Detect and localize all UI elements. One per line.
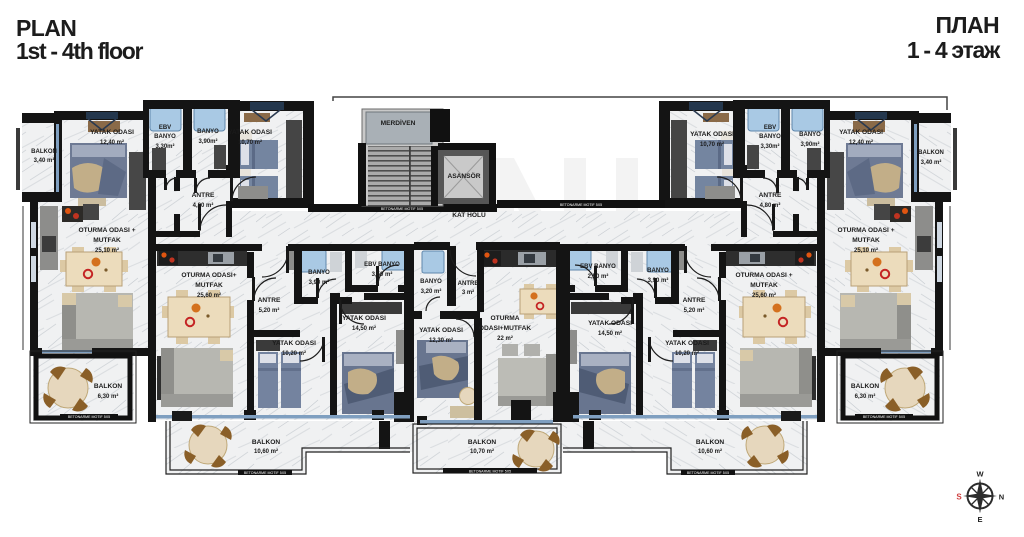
svg-text:25,10 m²: 25,10 m² xyxy=(95,247,119,254)
svg-text:MERDİVEN: MERDİVEN xyxy=(381,119,416,127)
svg-text:25,60 m²: 25,60 m² xyxy=(752,292,776,299)
svg-text:YATAK ODASI: YATAK ODASI xyxy=(419,327,463,334)
svg-text:BETONARME MOTIF 5X5: BETONARME MOTIF 5X5 xyxy=(687,471,729,475)
svg-text:3,90 m²: 3,90 m² xyxy=(309,279,330,286)
svg-text:25,10 m²: 25,10 m² xyxy=(854,247,878,254)
svg-text:10,60 m²: 10,60 m² xyxy=(698,448,722,455)
svg-text:BANYO: BANYO xyxy=(308,270,330,276)
svg-text:OTURMA ODASI +: OTURMA ODASI + xyxy=(735,272,792,279)
svg-text:EBV BANYO: EBV BANYO xyxy=(580,264,616,270)
svg-text:E: E xyxy=(977,515,982,524)
svg-text:ПЛАН: ПЛАН xyxy=(936,12,1000,38)
svg-text:BETONARME MOTIF 5X5: BETONARME MOTIF 5X5 xyxy=(560,203,602,207)
svg-text:4,80 m²: 4,80 m² xyxy=(193,202,214,209)
svg-text:ANTRE: ANTRE xyxy=(192,192,215,199)
svg-text:6,30 m²: 6,30 m² xyxy=(98,393,119,400)
svg-text:BETONARME MOTIF 5X5: BETONARME MOTIF 5X5 xyxy=(381,207,423,211)
svg-text:MUTFAK: MUTFAK xyxy=(93,237,121,244)
svg-text:BANYO: BANYO xyxy=(197,129,219,135)
svg-text:BALKON: BALKON xyxy=(696,439,724,446)
svg-text:YATAK ODASI: YATAK ODASI xyxy=(90,129,134,136)
svg-text:OTURMA ODASI +: OTURMA ODASI + xyxy=(837,227,894,234)
svg-text:12,30 m²: 12,30 m² xyxy=(429,337,453,344)
svg-text:1st - 4th floor: 1st - 4th floor xyxy=(16,38,144,64)
svg-text:12,40 m²: 12,40 m² xyxy=(849,139,873,146)
svg-text:EBV: EBV xyxy=(159,125,171,131)
svg-text:22 m²: 22 m² xyxy=(497,335,513,342)
svg-text:ANTRE: ANTRE xyxy=(759,192,782,199)
svg-text:EBV: EBV xyxy=(764,125,776,131)
svg-text:N: N xyxy=(999,493,1004,502)
svg-text:ASANSÖR: ASANSÖR xyxy=(448,171,481,180)
svg-text:3,30m²: 3,30m² xyxy=(155,143,174,150)
svg-text:OTURMA ODASI +: OTURMA ODASI + xyxy=(78,227,135,234)
svg-text:25,60 m²: 25,60 m² xyxy=(197,292,221,299)
svg-text:YATAK ODASI: YATAK ODASI xyxy=(665,340,709,347)
svg-text:MUTFAK: MUTFAK xyxy=(852,237,880,244)
svg-text:10,70 m²: 10,70 m² xyxy=(238,139,262,146)
svg-text:BALKON: BALKON xyxy=(252,439,280,446)
svg-text:YATAK ODASI: YATAK ODASI xyxy=(839,129,883,136)
svg-text:OTURMA: OTURMA xyxy=(491,315,520,322)
svg-text:10,20 m²: 10,20 m² xyxy=(675,350,699,357)
svg-text:BANYO: BANYO xyxy=(154,134,176,140)
svg-text:YATAK ODASI: YATAK ODASI xyxy=(588,320,632,327)
svg-text:KAT HOLÜ: KAT HOLÜ xyxy=(452,210,486,219)
svg-text:14,50 m²: 14,50 m² xyxy=(598,330,622,337)
svg-text:BANYO: BANYO xyxy=(759,134,781,140)
svg-text:2,50 m²: 2,50 m² xyxy=(588,273,609,280)
svg-text:MUTFAK: MUTFAK xyxy=(750,282,778,289)
svg-text:EBV BANYO: EBV BANYO xyxy=(364,262,400,268)
svg-text:5,20 m²: 5,20 m² xyxy=(684,307,705,314)
svg-text:BETONARME MOTIF 5X5: BETONARME MOTIF 5X5 xyxy=(469,470,511,474)
svg-text:ANTRE: ANTRE xyxy=(683,297,706,304)
svg-text:BALKON: BALKON xyxy=(851,383,879,390)
svg-text:BANYO: BANYO xyxy=(647,268,669,274)
svg-text:YATAK ODASI: YATAK ODASI xyxy=(690,131,734,138)
svg-text:5,20 m²: 5,20 m² xyxy=(259,307,280,314)
svg-text:S: S xyxy=(956,493,962,502)
svg-text:BETONARME MOTIF 5X5: BETONARME MOTIF 5X5 xyxy=(863,415,905,419)
svg-text:MUTFAK: MUTFAK xyxy=(195,282,223,289)
svg-text:YATAK ODASI: YATAK ODASI xyxy=(342,315,386,322)
svg-text:BALKON: BALKON xyxy=(31,149,57,155)
svg-text:12,40 m²: 12,40 m² xyxy=(100,139,124,146)
svg-text:OTURMA ODASI+: OTURMA ODASI+ xyxy=(181,272,236,279)
svg-text:10,70 m²: 10,70 m² xyxy=(470,448,494,455)
svg-text:3,90m²: 3,90m² xyxy=(198,138,217,145)
svg-text:4,80 m²: 4,80 m² xyxy=(760,202,781,209)
svg-text:10,20 m²: 10,20 m² xyxy=(282,350,306,357)
svg-text:YATAK ODASI: YATAK ODASI xyxy=(272,340,316,347)
svg-text:10,60 m²: 10,60 m² xyxy=(254,448,278,455)
svg-text:3,20 m²: 3,20 m² xyxy=(421,288,442,295)
svg-text:BETONARME MOTIF 5X5: BETONARME MOTIF 5X5 xyxy=(68,415,110,419)
svg-text:1 - 4 этаж: 1 - 4 этаж xyxy=(907,37,1001,63)
svg-text:3,30m²: 3,30m² xyxy=(760,143,779,150)
svg-text:3,90m²: 3,90m² xyxy=(800,141,819,148)
svg-text:ODASI+MUTFAK: ODASI+MUTFAK xyxy=(479,325,531,332)
svg-text:YATAK ODASI: YATAK ODASI xyxy=(228,129,272,136)
svg-text:W: W xyxy=(976,470,984,479)
svg-text:BETONARME MOTIF 5X5: BETONARME MOTIF 5X5 xyxy=(244,471,286,475)
svg-text:BANYO: BANYO xyxy=(420,279,442,285)
svg-text:BALKON: BALKON xyxy=(94,383,122,390)
svg-text:BANYO: BANYO xyxy=(799,132,821,138)
svg-text:3,40 m²: 3,40 m² xyxy=(34,157,55,164)
svg-text:BALKON: BALKON xyxy=(918,150,944,156)
svg-text:ANTRE: ANTRE xyxy=(458,281,479,287)
svg-text:BALKON: BALKON xyxy=(468,439,496,446)
svg-text:3,50 m²: 3,50 m² xyxy=(372,271,393,278)
svg-text:10,70 m²: 10,70 m² xyxy=(700,141,724,148)
svg-text:6,30 m²: 6,30 m² xyxy=(855,393,876,400)
svg-text:3,40 m²: 3,40 m² xyxy=(921,159,942,166)
svg-text:3 m²: 3 m² xyxy=(462,289,474,296)
svg-text:14,50 m²: 14,50 m² xyxy=(352,325,376,332)
svg-text:ANTRE: ANTRE xyxy=(258,297,281,304)
svg-text:3,90 m²: 3,90 m² xyxy=(648,277,669,284)
